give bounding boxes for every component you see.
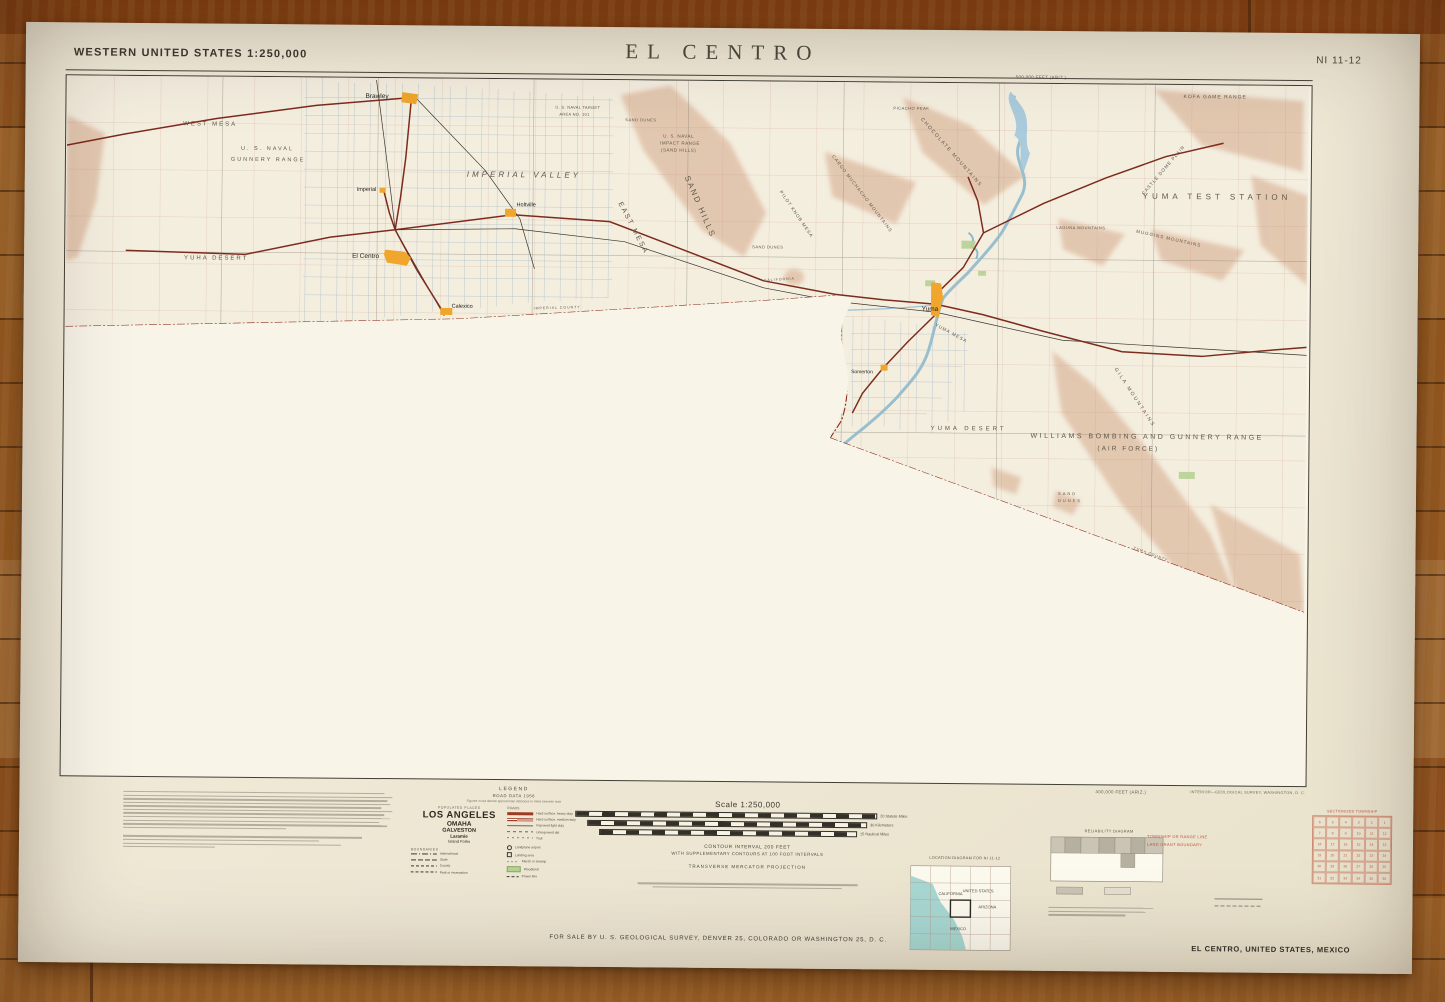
margin-note-bottom: 400,000 FEET (ARIZ.) — [1095, 789, 1146, 794]
section-number: 6 — [1313, 816, 1326, 827]
sectionized-township: SECTIONIZED TOWNSHIP 6543217891011121817… — [1309, 809, 1396, 885]
map-title: EL CENTRO — [26, 34, 1420, 71]
road-light-swatch — [507, 825, 533, 826]
boundary-label: International — [440, 852, 458, 856]
scale-block: Scale 1:250,000 20 Statute Miles 30 Kilo… — [575, 799, 921, 892]
section-number: 32 — [1326, 872, 1339, 883]
scale-bar-km — [587, 820, 867, 828]
populated-place-sample: LOS ANGELES — [411, 809, 507, 821]
legend-populated-places: POPULATED PLACES LOS ANGELES OMAHA GALVE… — [411, 805, 508, 880]
section-number: 1 — [1378, 817, 1391, 828]
woodland-swatch — [507, 866, 521, 873]
section-number: 3 — [1352, 817, 1365, 828]
marsh-symbol — [507, 861, 519, 862]
credits-fine-print — [123, 791, 396, 852]
power-line-symbol — [507, 876, 519, 877]
section-number: 21 — [1339, 850, 1352, 861]
symbol-label: Woodland — [524, 867, 539, 871]
section-number: 27 — [1352, 861, 1365, 872]
boundary-state-swatch — [411, 859, 437, 860]
red-line-sample — [1215, 898, 1263, 899]
section-number: 15 — [1352, 839, 1365, 850]
section-number: 29 — [1326, 861, 1339, 872]
symbol-label: Power line — [522, 874, 537, 878]
boundary-international-swatch — [411, 853, 437, 854]
scale-label: Scale 1:250,000 — [575, 799, 920, 811]
red-line-sample-dashed — [1214, 905, 1262, 906]
section-number: 24 — [1378, 850, 1391, 861]
section-number: 17 — [1326, 839, 1339, 850]
locd-united-states: UNITED STATES — [963, 888, 994, 893]
section-number: 4 — [1339, 816, 1352, 827]
contour-interval-line2: WITH SUPPLEMENTARY CONTOURS AT 100 FOOT … — [575, 850, 920, 858]
sectionized-grid: 6543217891011121817161514131920212223243… — [1312, 815, 1393, 885]
trail-swatch — [507, 837, 533, 838]
projection-note: TRANSVERSE MERCATOR PROJECTION — [575, 863, 920, 871]
section-number: 2 — [1365, 817, 1378, 828]
section-number: 23 — [1365, 850, 1378, 861]
section-number: 30 — [1313, 861, 1326, 872]
locd-arizona: ARIZONA — [978, 904, 996, 909]
boundary-label: County — [440, 864, 450, 868]
boundary-county-swatch — [411, 865, 437, 866]
section-number: 31 — [1313, 872, 1326, 883]
map-sheet: WESTERN UNITED STATES 1:250,000 EL CENTR… — [18, 22, 1420, 974]
road-heavy-swatch — [507, 812, 533, 815]
section-number: 18 — [1313, 839, 1326, 850]
boundary-label: Park or reservation — [440, 870, 468, 874]
road-class-label: Hard surface, heavy duty — [536, 811, 573, 815]
section-number: 14 — [1365, 839, 1378, 850]
section-number: 25 — [1378, 862, 1391, 873]
section-number: 35 — [1365, 873, 1378, 884]
section-number: 9 — [1339, 828, 1352, 839]
scale-bar-nautical — [599, 829, 857, 837]
scale-bar-label: 15 Nautical Miles — [860, 832, 889, 836]
map-body-graphic — [61, 75, 1312, 786]
reliability-fine-print — [1048, 907, 1158, 917]
section-number: 10 — [1352, 828, 1365, 839]
township-range-note: TOWNSHIP OR RANGE LINE — [1147, 834, 1267, 840]
locd-california: CALIFORNIA — [939, 891, 963, 896]
road-class-label: Unimproved dirt — [536, 830, 559, 834]
sheet-caption: EL CENTRO, UNITED STATES, MEXICO — [1191, 944, 1350, 954]
boundary-label: State — [440, 858, 448, 862]
symbol-label: Landing area — [515, 853, 534, 857]
sectionized-title: SECTIONIZED TOWNSHIP — [1309, 809, 1395, 814]
section-number: 34 — [1352, 872, 1365, 883]
symbol-label: Marsh or swamp — [522, 860, 546, 864]
section-number: 33 — [1339, 872, 1352, 883]
boundary-park-swatch — [411, 871, 437, 872]
land-grant-note: LAND GRANT BOUNDARY — [1147, 841, 1267, 847]
section-number: 19 — [1313, 850, 1326, 861]
section-number: 16 — [1339, 839, 1352, 850]
locd-mexico: MEXICO — [950, 926, 966, 931]
road-dirt-swatch — [507, 831, 533, 832]
section-number: 11 — [1365, 828, 1378, 839]
section-number: 8 — [1326, 827, 1339, 838]
section-number: 20 — [1326, 850, 1339, 861]
sheet-number: NI 11-12 — [1316, 55, 1362, 66]
road-class-label: Trail — [536, 836, 542, 840]
airport-symbol — [507, 845, 512, 850]
red-overprint-notes: TOWNSHIP OR RANGE LINE LAND GRANT BOUNDA… — [1147, 834, 1267, 850]
photo-of-map-on-wood-floor: WESTERN UNITED STATES 1:250,000 EL CENTR… — [0, 0, 1445, 1002]
section-number: 7 — [1313, 827, 1326, 838]
margin-note-top: 500,000 FEET (ARIZ.) — [1016, 75, 1067, 80]
agency-credit-line: INTERIOR—GEOLOGICAL SURVEY, WASHINGTON, … — [1009, 789, 1305, 796]
symbol-label: Landplane airport — [515, 846, 541, 850]
section-number: 22 — [1352, 850, 1365, 861]
section-number: 12 — [1378, 828, 1391, 839]
section-number: 36 — [1378, 873, 1391, 884]
scale-bar-label: 20 Statute Miles — [880, 815, 907, 819]
section-number: 5 — [1326, 816, 1339, 827]
section-number: 28 — [1339, 861, 1352, 872]
road-medium-swatch — [507, 818, 533, 821]
map-neatline — [60, 74, 1313, 787]
road-class-label: Hard surface, medium duty — [536, 818, 576, 822]
landing-area-symbol — [507, 852, 512, 857]
location-diagram-title: LOCATION DIAGRAM FOR NI 11-12 — [905, 856, 1025, 861]
road-class-label: Improved light duty — [536, 824, 564, 828]
section-number: 13 — [1378, 839, 1391, 850]
scale-fine-print — [637, 882, 857, 889]
scale-bar-miles — [575, 811, 877, 819]
section-number: 26 — [1365, 861, 1378, 872]
scale-bar-label: 30 Kilometers — [870, 823, 893, 827]
